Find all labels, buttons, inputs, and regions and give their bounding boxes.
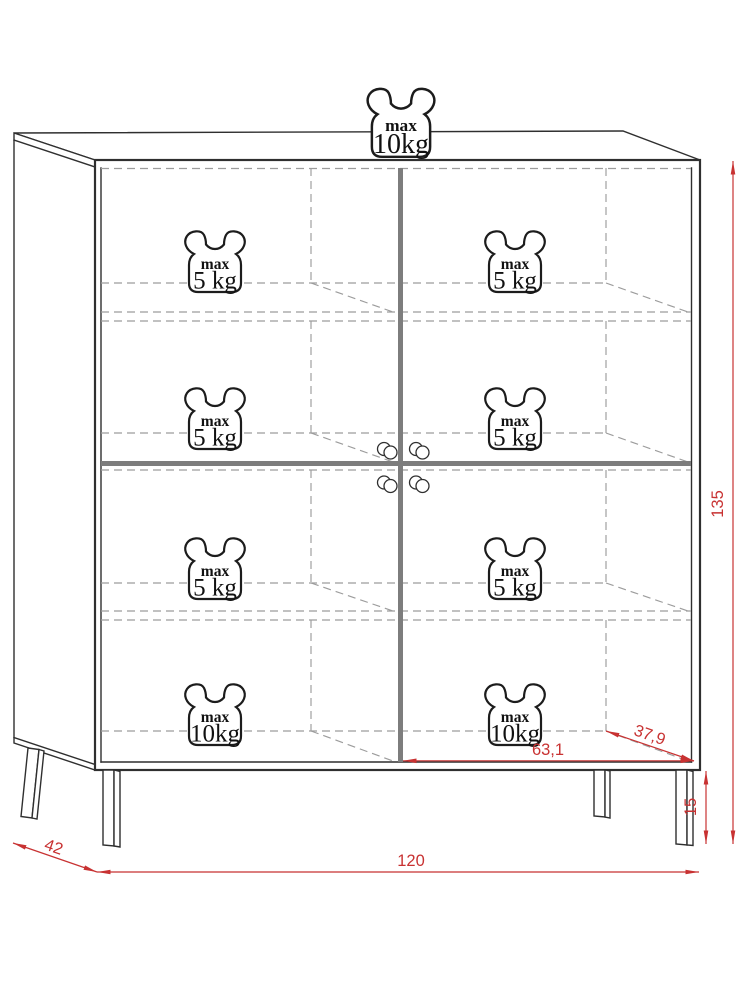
weight-value-label: 5 kg xyxy=(193,268,237,295)
weight-icon-top: max 10kg xyxy=(368,89,435,160)
weight-value-label: 5 kg xyxy=(493,575,537,602)
leg-back-left xyxy=(21,748,44,819)
dimension-drawing-page: max 10kg max 5 kg max 5 kg max 5 kg max … xyxy=(0,0,750,1000)
leg-front-left xyxy=(103,770,120,847)
cabinet-left-panel xyxy=(14,133,95,770)
weight-value-label: 5 kg xyxy=(493,268,537,295)
weight-value-label: 5 kg xyxy=(493,425,537,452)
weight-value-label: 5 kg xyxy=(193,575,237,602)
cabinet-dimension-diagram: max 10kg max 5 kg max 5 kg max 5 kg max … xyxy=(0,0,750,1000)
dimension-label-depth: 42 xyxy=(42,836,65,859)
dimension-label-total-height: 135 xyxy=(709,490,727,518)
weight-value-label: 10kg xyxy=(190,721,241,748)
dimension-label-interior-width: 63,1 xyxy=(532,741,564,759)
dimension-label-width: 120 xyxy=(397,852,425,870)
cabinet-body xyxy=(14,131,700,770)
cabinet-top-panel xyxy=(14,131,700,160)
dimension-label-leg-height: 15 xyxy=(682,798,700,816)
leg-back-right xyxy=(594,770,610,818)
weight-value-label: 10kg xyxy=(373,129,429,160)
weight-value-label: 5 kg xyxy=(193,425,237,452)
